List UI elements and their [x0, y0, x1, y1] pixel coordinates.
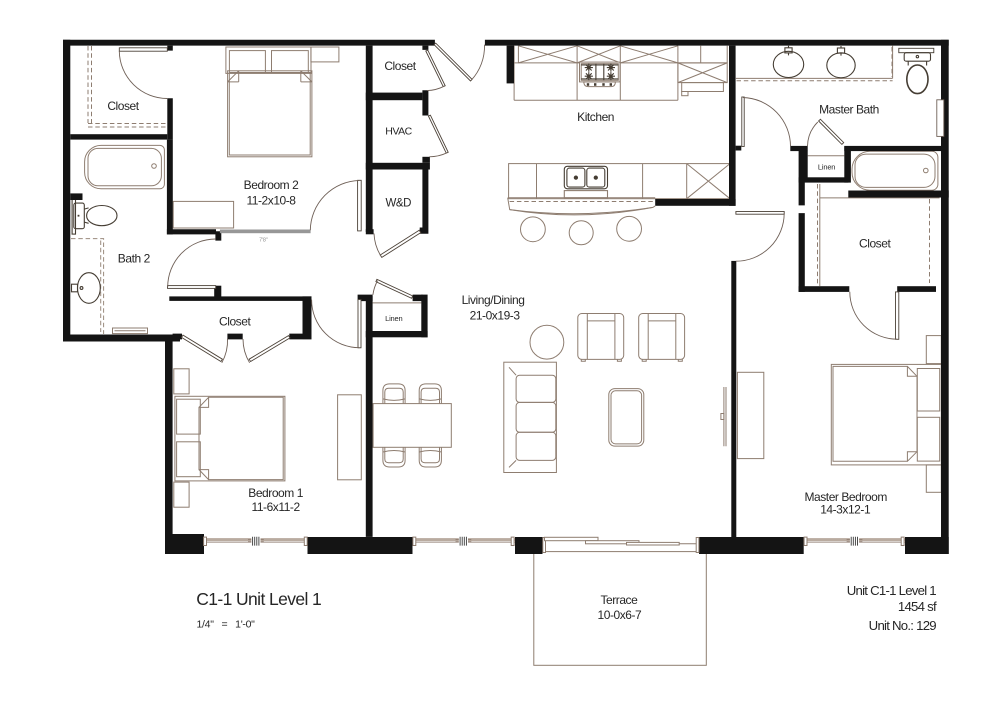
svg-text:Bedroom 2: Bedroom 2 [244, 178, 299, 192]
svg-text:W&D: W&D [385, 198, 411, 210]
svg-text:Bedroom 1: Bedroom 1 [248, 486, 303, 500]
svg-text:Closet: Closet [859, 237, 891, 251]
svg-text:14-3x12-1: 14-3x12-1 [820, 502, 871, 516]
svg-text:Bath 2: Bath 2 [118, 252, 151, 266]
svg-text:1/4" = 1'-0": 1/4" = 1'-0" [197, 619, 256, 631]
svg-text:Linen: Linen [818, 162, 835, 171]
svg-text:Linen: Linen [385, 314, 402, 323]
svg-text:Terrace: Terrace [600, 593, 638, 607]
svg-text:Kitchen: Kitchen [577, 110, 614, 124]
svg-text:C1-1 Unit Level 1: C1-1 Unit Level 1 [196, 589, 321, 609]
svg-text:7'8": 7'8" [259, 237, 268, 243]
svg-text:Closet: Closet [219, 315, 251, 329]
svg-text:Master Bath: Master Bath [819, 103, 879, 117]
svg-text:Closet: Closet [107, 99, 139, 113]
svg-text:Unit No.: 129: Unit No.: 129 [869, 618, 937, 633]
svg-text:1454 sf: 1454 sf [898, 599, 937, 614]
svg-text:HVAC: HVAC [385, 126, 412, 138]
svg-text:Closet: Closet [384, 59, 416, 73]
svg-text:11-6x11-2: 11-6x11-2 [251, 500, 300, 514]
svg-text:11-2x10-8: 11-2x10-8 [246, 194, 296, 208]
svg-text:Unit C1-1 Level 1: Unit C1-1 Level 1 [847, 583, 937, 598]
svg-text:10-0x6-7: 10-0x6-7 [598, 608, 643, 622]
svg-text:21-0x19-3: 21-0x19-3 [470, 308, 521, 322]
svg-text:Living/Dining: Living/Dining [462, 293, 525, 307]
